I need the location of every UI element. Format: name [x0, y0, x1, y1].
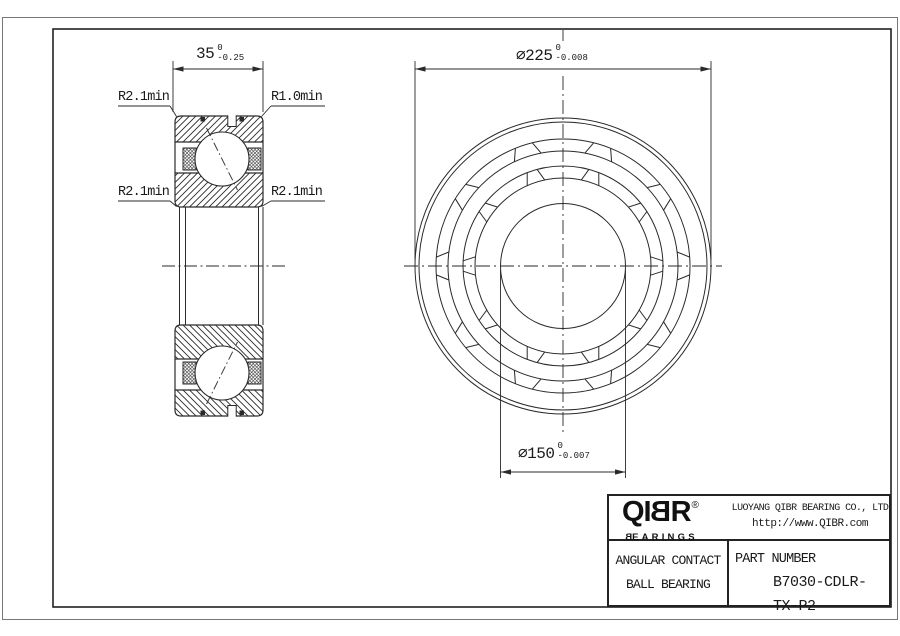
- fillet-label-top-right: R1.0min: [271, 90, 322, 105]
- title-block-header-row: QIBR® BEARINGS LUOYANG QIBR BEARING CO.,…: [609, 496, 889, 541]
- bearing-type-cell: ANGULAR CONTACT BALL BEARING: [609, 541, 729, 607]
- front-view: [404, 30, 722, 432]
- fillet-label-mid-left: R2.1min: [118, 185, 169, 200]
- bore-diameter-tolerance: 0 -0.007: [557, 441, 589, 461]
- part-number-value: B7030-CDLR-TX-P2: [773, 571, 889, 619]
- brand-logo: QIBR® BEARINGS: [609, 496, 731, 539]
- company-info: LUOYANG QIBR BEARING CO., LTD http://www…: [731, 496, 889, 539]
- fillet-label-mid-right: R2.1min: [271, 185, 322, 200]
- part-number-cell: PART NUMBER B7030-CDLR-TX-P2: [729, 541, 889, 607]
- cage-section-left: [183, 148, 196, 170]
- outer-diameter-value: ⌀225: [516, 45, 552, 65]
- fillet-label-top-left: R2.1min: [118, 90, 169, 105]
- cross-section-view: [162, 115, 287, 418]
- registered-trademark-symbol: ®: [692, 500, 699, 511]
- bearing-type-line1: ANGULAR CONTACT: [609, 549, 727, 573]
- drawing-sheet: R2.1min R1.0min R2.1min R2.1min 35 0 -0.…: [0, 0, 900, 636]
- qibr-logo: QIBR®: [622, 498, 731, 533]
- company-name: LUOYANG QIBR BEARING CO., LTD: [731, 503, 889, 514]
- rivet-mark: [240, 117, 245, 122]
- width-dimension: 35 0 -0.25: [196, 45, 244, 63]
- part-number-label: PART NUMBER: [735, 549, 889, 571]
- outer-diameter-dimension: ⌀225 0 -0.008: [516, 45, 588, 65]
- cross-section-mirrored: [175, 325, 263, 417]
- rivet-mark: [201, 117, 206, 122]
- bearing-type-line2: BALL BEARING: [609, 573, 727, 597]
- bore-diameter-value: ⌀150: [518, 443, 554, 463]
- cage-section-right: [248, 148, 261, 170]
- company-website: http://www.QIBR.com: [731, 518, 889, 530]
- title-block: QIBR® BEARINGS LUOYANG QIBR BEARING CO.,…: [607, 494, 891, 607]
- title-block-detail-row: ANGULAR CONTACT BALL BEARING PART NUMBER…: [609, 541, 889, 607]
- width-tolerance: 0 -0.25: [217, 43, 244, 63]
- outer-diameter-tolerance: 0 -0.008: [555, 43, 587, 63]
- bore-diameter-dimension: ⌀150 0 -0.007: [518, 443, 590, 463]
- width-value: 35: [196, 45, 214, 63]
